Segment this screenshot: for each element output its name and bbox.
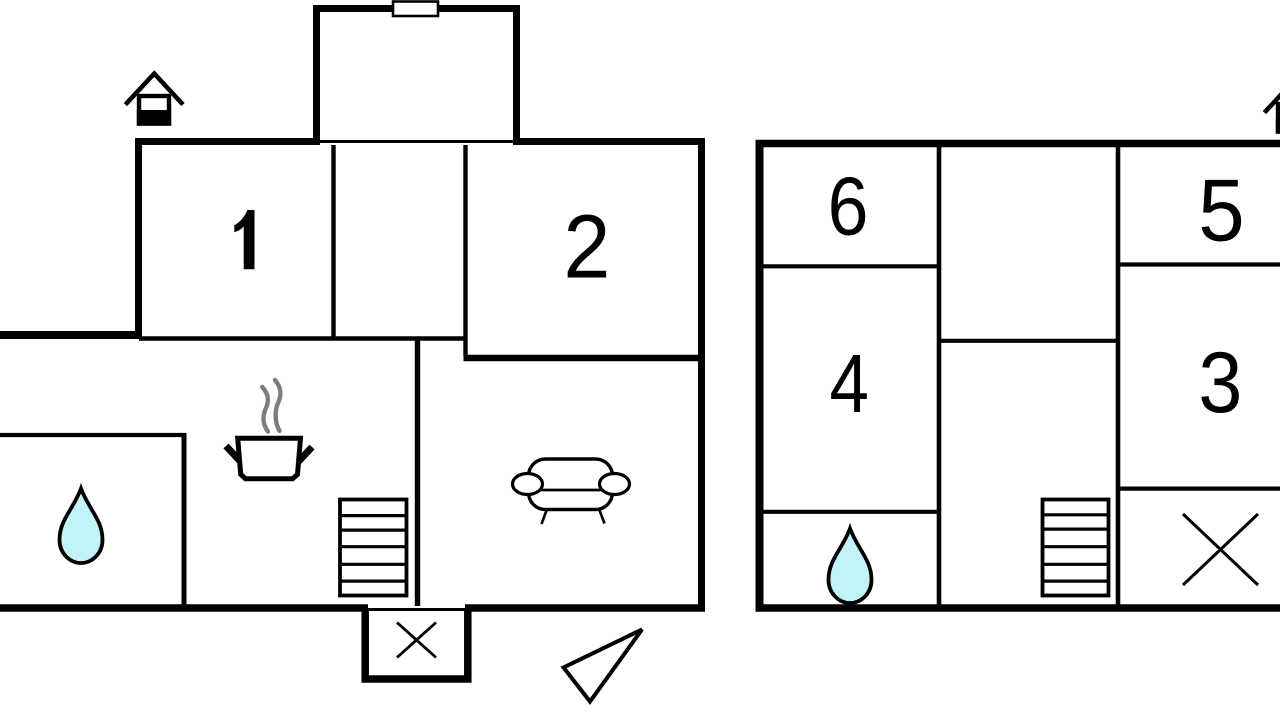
svg-text:6: 6	[828, 159, 869, 252]
svg-text:4: 4	[829, 339, 868, 430]
svg-text:2: 2	[563, 197, 610, 297]
svg-text:3: 3	[1198, 334, 1242, 431]
svg-text:5: 5	[1198, 162, 1244, 261]
